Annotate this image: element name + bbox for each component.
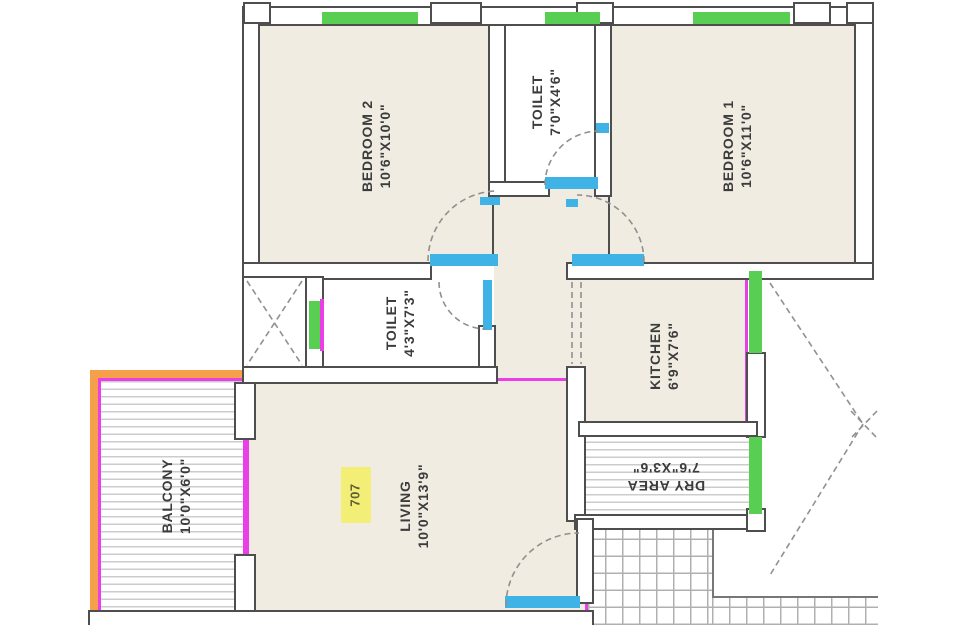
- room-label-balcony: BALCONY 10'0"X6'0": [158, 458, 194, 534]
- lobby-landing: [712, 522, 878, 598]
- wall-toilet-top-left: [488, 24, 506, 197]
- wall-dry-area-top: [578, 421, 758, 437]
- window-toilet-mid-finish: [320, 299, 324, 351]
- room-dimensions: 10'0"X6'0": [176, 458, 194, 534]
- window-bedroom2: [322, 12, 418, 24]
- tiled-lobby-floor: [588, 524, 712, 625]
- window-bedroom1: [693, 12, 790, 24]
- door-sill-entrance: [505, 596, 580, 608]
- wall-column: [430, 2, 482, 24]
- room-dimensions: 10'6"X11'0": [737, 100, 755, 192]
- wall-kitchen-left: [566, 366, 586, 522]
- wall-column: [846, 2, 874, 24]
- room-label-bedroom1: BEDROOM 1 10'6"X11'0": [719, 100, 755, 192]
- tiled-lobby-floor-lower: [712, 598, 878, 625]
- window-kitchen: [749, 271, 762, 353]
- room-dimensions: 10'6"X10'0": [376, 100, 394, 192]
- room-label-bedroom2: BEDROOM 2 10'6"X10'0": [358, 100, 394, 192]
- wall-dry-area-bottom: [574, 514, 764, 530]
- room-dimensions: 7'6"X3'6": [627, 459, 705, 477]
- wall-balcony-stub-top: [234, 382, 256, 440]
- wall-living-right: [576, 518, 594, 604]
- unit-number-badge: 707: [341, 467, 371, 523]
- wall-balcony-stub-bottom: [234, 554, 256, 612]
- room-label-toilet-mid: TOILET 4'3"X7'3": [382, 289, 418, 357]
- room-label-toilet-top: TOILET 7'0"X4'6": [528, 68, 564, 136]
- room-label-dry-area: DRY AREA 7'6"X3'6": [627, 459, 705, 495]
- wall-column: [243, 2, 271, 24]
- room-dimensions: 7'0"X4'6": [546, 68, 564, 136]
- window-toilet-top: [545, 12, 600, 24]
- room-name: TOILET: [382, 289, 400, 357]
- room-dimensions: 6'9"X7'6": [664, 322, 682, 390]
- room-name: BEDROOM 2: [358, 100, 376, 192]
- room-name: KITCHEN: [646, 322, 664, 390]
- room-name: BEDROOM 1: [719, 100, 737, 192]
- door-sill-bedroom1: [572, 254, 644, 266]
- wall-toilet-mid-right: [478, 325, 496, 372]
- unit-number: 707: [348, 483, 365, 506]
- room-name: DRY AREA: [627, 477, 705, 495]
- wall-living-top: [242, 366, 498, 384]
- sill-marker: [480, 197, 500, 205]
- door-sill-toilet-top: [545, 177, 598, 189]
- floor-plan: BEDROOM 2 10'6"X10'0" TOILET 7'0"X4'6" B…: [0, 0, 957, 625]
- window-dry-area: [749, 437, 762, 514]
- room-name: TOILET: [528, 68, 546, 136]
- duct-shaft-box: [242, 276, 307, 370]
- room-name: LIVING: [396, 464, 414, 549]
- wall-toilet-top-bottom: [488, 181, 550, 197]
- door-sill-bedroom2: [430, 254, 498, 266]
- sill-marker: [596, 123, 609, 133]
- wall-bottom: [88, 610, 594, 625]
- wall-column: [793, 2, 831, 24]
- window-toilet-mid: [309, 301, 320, 349]
- room-dimensions: 4'3"X7'3": [400, 289, 418, 357]
- room-label-living: LIVING 10'0"X13'9": [396, 464, 432, 549]
- room-name: BALCONY: [158, 458, 176, 534]
- wall-right: [854, 6, 874, 280]
- room-label-kitchen: KITCHEN 6'9"X7'6": [646, 322, 682, 390]
- wall-toilet-top-right: [594, 24, 612, 197]
- door-sill-toilet-mid: [483, 280, 492, 330]
- room-dimensions: 10'0"X13'9": [414, 464, 432, 549]
- wall-left: [242, 6, 260, 280]
- sill-marker: [566, 199, 578, 207]
